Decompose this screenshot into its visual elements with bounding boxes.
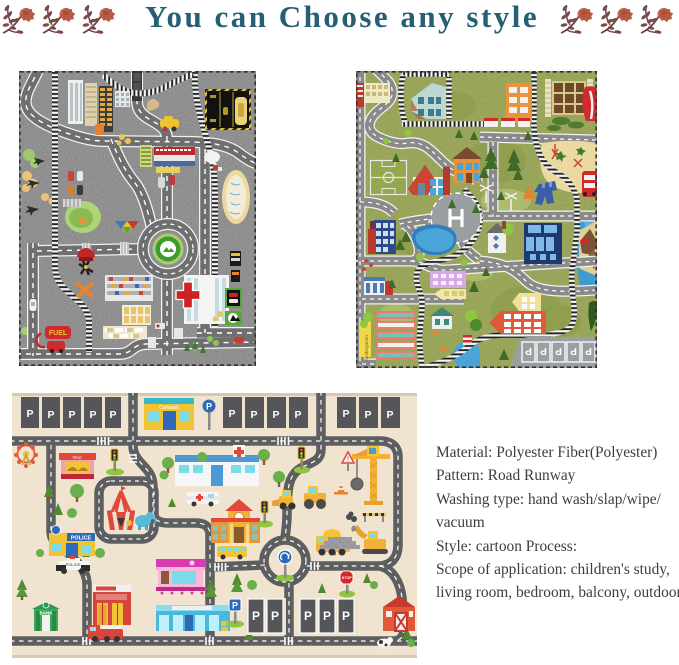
- svg-text:P: P: [232, 601, 238, 611]
- svg-text:P: P: [540, 345, 547, 356]
- svg-text:P: P: [47, 409, 54, 421]
- svg-text:P: P: [26, 408, 33, 420]
- svg-text:Carwash: Carwash: [159, 405, 179, 411]
- svg-text:P: P: [585, 345, 592, 356]
- svg-text:P: P: [570, 345, 577, 356]
- svg-text:FUEL: FUEL: [49, 330, 68, 337]
- svg-text:P: P: [228, 408, 235, 420]
- svg-text:P: P: [386, 409, 393, 421]
- svg-text:!: !: [347, 456, 349, 464]
- svg-text:P: P: [252, 609, 260, 623]
- svg-text:P: P: [555, 345, 562, 356]
- svg-text:P: P: [323, 609, 331, 623]
- svg-text:BANK: BANK: [40, 611, 54, 616]
- svg-text:P: P: [89, 409, 96, 421]
- svg-text:P: P: [304, 609, 312, 623]
- svg-text:P: P: [364, 409, 371, 421]
- svg-text:P: P: [68, 409, 75, 421]
- svg-text:P: P: [342, 609, 350, 623]
- svg-text:P: P: [342, 408, 349, 420]
- svg-text:P: P: [109, 409, 116, 421]
- svg-text:P: P: [294, 409, 301, 421]
- svg-text:Shop: Shop: [72, 455, 82, 460]
- svg-text:P: P: [250, 409, 257, 421]
- svg-text:Kindergarten: Kindergarten: [364, 335, 369, 361]
- svg-text:P: P: [206, 402, 212, 412]
- svg-text:P: P: [272, 409, 279, 421]
- svg-text:STOP: STOP: [342, 576, 352, 580]
- svg-text:POLICE: POLICE: [71, 536, 92, 542]
- svg-text:P: P: [271, 609, 279, 623]
- svg-text:POLICE: POLICE: [66, 562, 81, 567]
- svg-text:P: P: [525, 345, 532, 356]
